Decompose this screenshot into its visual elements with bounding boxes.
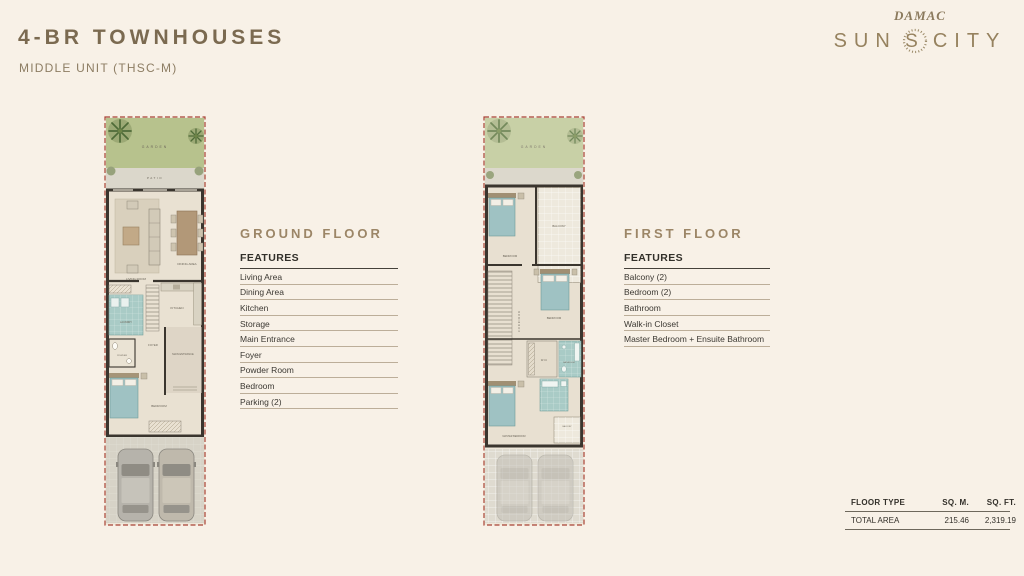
nightstand (572, 269, 577, 275)
features-label: FEATURES (240, 252, 398, 269)
bed-headboard (109, 373, 139, 378)
garden-area: GARDEN (106, 118, 204, 168)
patio-area: PATIO (106, 167, 204, 190)
logo-word-city: CITY (933, 28, 1007, 54)
bathtub (575, 343, 580, 361)
bush-icon (574, 171, 582, 179)
first-floor-plan: GARDEN BALCONY (482, 115, 586, 527)
svg-text:BATHROOM: BATHROOM (563, 361, 575, 364)
svg-text:MASTER BEDROOM: MASTER BEDROOM (503, 435, 526, 438)
sink (562, 345, 566, 349)
svg-text:DINING AREA: DINING AREA (177, 262, 196, 266)
svg-text:KITCHEN: KITCHEN (170, 306, 183, 310)
car (497, 455, 532, 521)
feature-item: Kitchen (240, 300, 398, 316)
logo-word-sun: SUN (834, 28, 897, 54)
total-area-sqft: 2,319.19 (969, 516, 1016, 525)
svg-text:PATIO: PATIO (147, 176, 163, 180)
armchair (127, 265, 138, 273)
powder-room: POWDER (109, 339, 135, 367)
svg-text:BALCONY: BALCONY (552, 224, 566, 228)
palm-tree-icon (487, 119, 511, 143)
coffee-table (123, 227, 139, 245)
area-table-header: FLOOR TYPE SQ. M. SQ. FT. (845, 494, 1010, 512)
page-title: 4-BR TOWNHOUSES (18, 26, 285, 50)
feature-item: Parking (2) (240, 394, 398, 410)
feature-item: Living Area (240, 269, 398, 285)
bush-icon (486, 171, 494, 179)
svg-text:W.I.C: W.I.C (541, 358, 547, 362)
feature-item: Balcony (2) (624, 269, 770, 285)
armchair (127, 201, 138, 209)
feature-item: Foyer (240, 347, 398, 363)
bed-headboard (540, 269, 570, 274)
bathroom: BATHROOM (559, 341, 581, 377)
palm-tree-icon (108, 119, 132, 143)
garden-area: GARDEN (485, 118, 583, 168)
terrace-strip (485, 168, 583, 186)
sun-emblem-icon: S (901, 26, 929, 56)
parking-view-below (485, 449, 583, 523)
feature-item: Main Entrance (240, 331, 398, 347)
feature-item: Master Bedroom + Ensuite Bathroom (624, 331, 770, 347)
bush-icon (195, 167, 204, 176)
svg-text:BALCONY: BALCONY (562, 425, 572, 428)
palm-tree-icon (188, 128, 204, 144)
ground-floor-plan: GARDEN PATIO LIVING R (103, 115, 207, 527)
parking-area (106, 437, 204, 523)
foyer-label: FOYER (148, 343, 158, 347)
sun-city-logo: DAMAC SUN S CITY (830, 8, 1010, 56)
stove (173, 285, 180, 290)
feature-item: Dining Area (240, 285, 398, 301)
dining-table (177, 211, 197, 255)
bed-headboard (488, 193, 516, 198)
nightstand (141, 373, 147, 379)
brochure-page: 4-BR TOWNHOUSES MIDDLE UNIT (THSC-M) DAM… (0, 0, 1024, 576)
balcony-1: BALCONY (538, 188, 581, 283)
area-table: FLOOR TYPE SQ. M. SQ. FT. TOTAL AREA 215… (845, 494, 1010, 530)
main-entrance: MAIN ENTRANCE (165, 327, 202, 395)
palm-tree-icon (567, 128, 583, 144)
bed-headboard (488, 381, 516, 386)
svg-text:BEDROOM: BEDROOM (547, 316, 562, 320)
sun-city-wordmark: SUN S CITY (830, 26, 1010, 56)
svg-text:GARDEN: GARDEN (142, 145, 169, 149)
closet (109, 285, 131, 293)
col-sqm: SQ. M. (927, 498, 969, 507)
svg-text:LAUNDRY: LAUNDRY (120, 321, 132, 324)
nightstand (518, 193, 524, 199)
svg-text:S: S (905, 31, 925, 52)
nightstand (534, 269, 539, 275)
car (538, 455, 573, 521)
sink (127, 359, 132, 364)
wardrobe (149, 421, 181, 432)
ground-floor-features: FEATURES Living Area Dining Area Kitchen… (240, 252, 398, 409)
bush-icon (107, 167, 116, 176)
toilet (113, 343, 118, 350)
feature-item: Bedroom (240, 378, 398, 394)
damac-wordmark: DAMAC (830, 8, 1010, 24)
car (157, 449, 196, 521)
living-room: LIVING ROOM (115, 199, 160, 281)
stairs (488, 271, 512, 365)
feature-item: Powder Room (240, 363, 398, 379)
first-floor-features: FEATURES Balcony (2) Bedroom (2) Bathroo… (624, 252, 770, 347)
car (116, 449, 155, 521)
balcony-2: BALCONY (554, 417, 580, 443)
svg-text:CORRIDOR: CORRIDOR (517, 310, 521, 332)
kitchen-counter (194, 283, 202, 325)
col-sqft: SQ. FT. (969, 498, 1016, 507)
svg-text:POWDER: POWDER (117, 355, 127, 357)
svg-text:MAIN ENTRANCE: MAIN ENTRANCE (172, 352, 194, 356)
feature-item: Bathroom (624, 300, 770, 316)
toilet (562, 366, 567, 372)
svg-text:GARDEN: GARDEN (521, 145, 548, 149)
svg-text:BEDROOM: BEDROOM (503, 254, 518, 258)
features-label: FEATURES (624, 252, 770, 269)
ensuite-bathroom (540, 379, 568, 411)
area-table-row: TOTAL AREA 215.46 2,319.19 (845, 512, 1010, 530)
first-floor-heading: FIRST FLOOR (624, 226, 744, 241)
stairs (146, 285, 159, 331)
svg-text:BEDROOM: BEDROOM (151, 404, 167, 408)
ground-floor-heading: GROUND FLOOR (240, 226, 383, 241)
col-floor-type: FLOOR TYPE (851, 498, 927, 507)
shower (561, 381, 567, 387)
total-area-sqm: 215.46 (927, 516, 969, 525)
page-subtitle: MIDDLE UNIT (THSC-M) (19, 61, 177, 75)
total-area-label: TOTAL AREA (851, 516, 927, 525)
feature-item: Walk-in Closet (624, 316, 770, 332)
feature-item: Bedroom (2) (624, 285, 770, 301)
bathtub (542, 381, 558, 387)
wardrobe (529, 343, 535, 375)
nightstand (518, 381, 524, 387)
feature-item: Storage (240, 316, 398, 332)
